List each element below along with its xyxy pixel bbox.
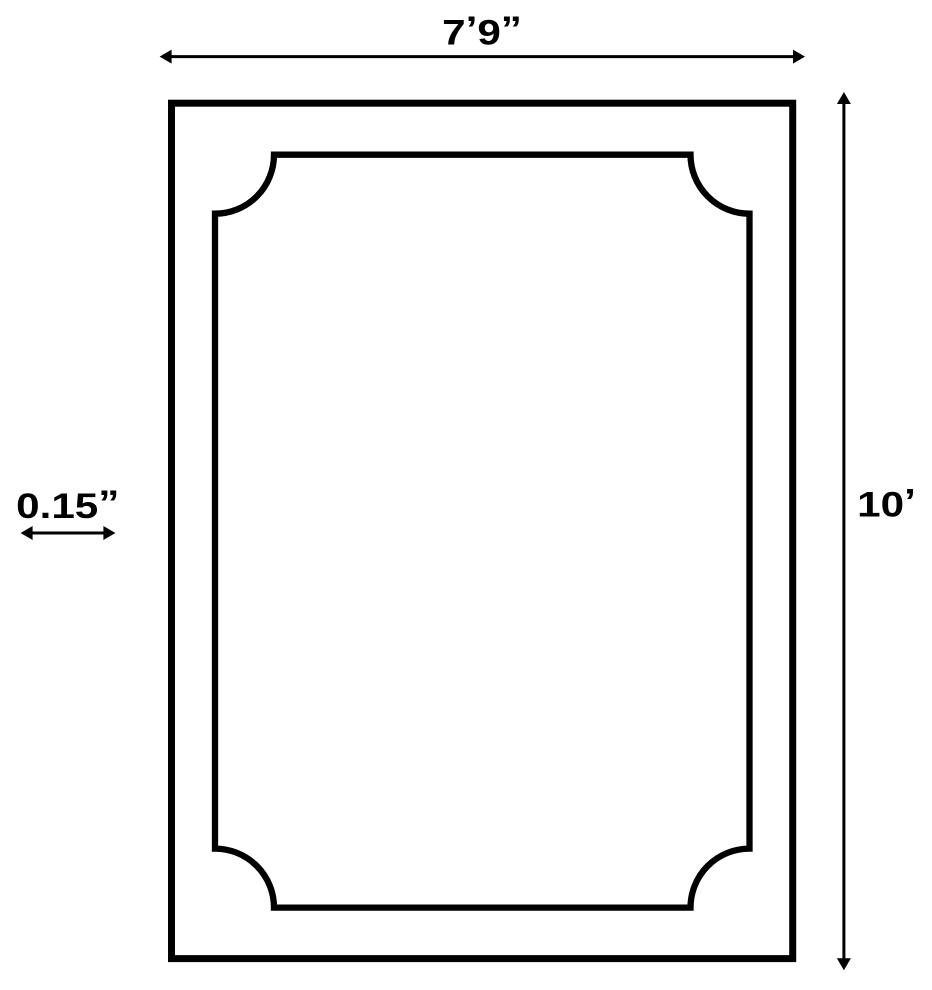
svg-text:0.15”: 0.15” <box>16 484 119 526</box>
svg-text:10’: 10’ <box>857 483 916 525</box>
svg-text:7’9”: 7’9” <box>442 10 522 53</box>
